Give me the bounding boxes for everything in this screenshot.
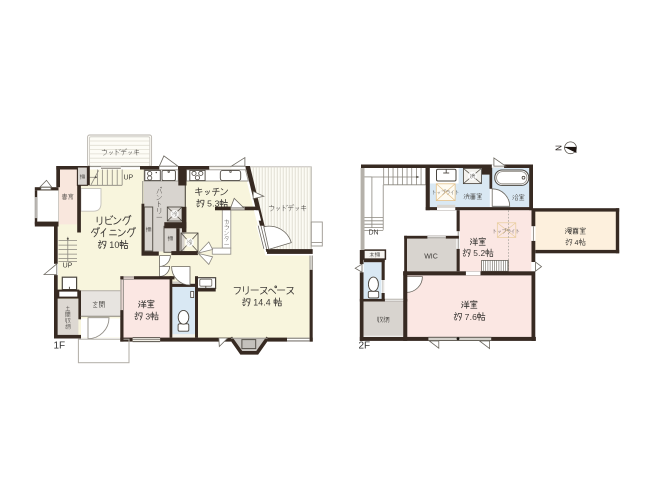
svg-text:WIC: WIC xyxy=(424,254,438,261)
svg-text:UP: UP xyxy=(63,263,73,270)
svg-text:2F: 2F xyxy=(359,341,371,352)
svg-text:N: N xyxy=(555,145,564,151)
svg-text:4: 4 xyxy=(575,238,579,247)
svg-text:3: 3 xyxy=(145,311,150,321)
svg-text:UP: UP xyxy=(124,175,134,182)
svg-text:7.6: 7.6 xyxy=(465,312,477,322)
svg-text:5.2: 5.2 xyxy=(473,248,485,258)
svg-text:1F: 1F xyxy=(54,341,66,352)
svg-text:14.4: 14.4 xyxy=(253,297,271,307)
svg-text:DN: DN xyxy=(368,230,378,237)
svg-text:10: 10 xyxy=(109,240,119,250)
